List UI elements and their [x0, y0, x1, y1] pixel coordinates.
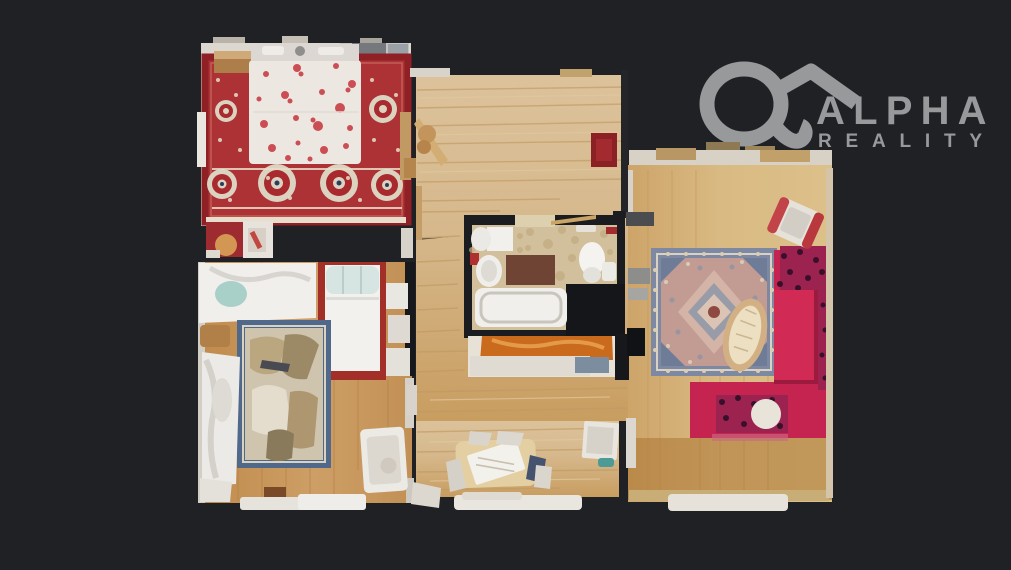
svg-text:REALITY: REALITY [818, 131, 996, 152]
svg-text:ALPHA: ALPHA [816, 89, 995, 133]
